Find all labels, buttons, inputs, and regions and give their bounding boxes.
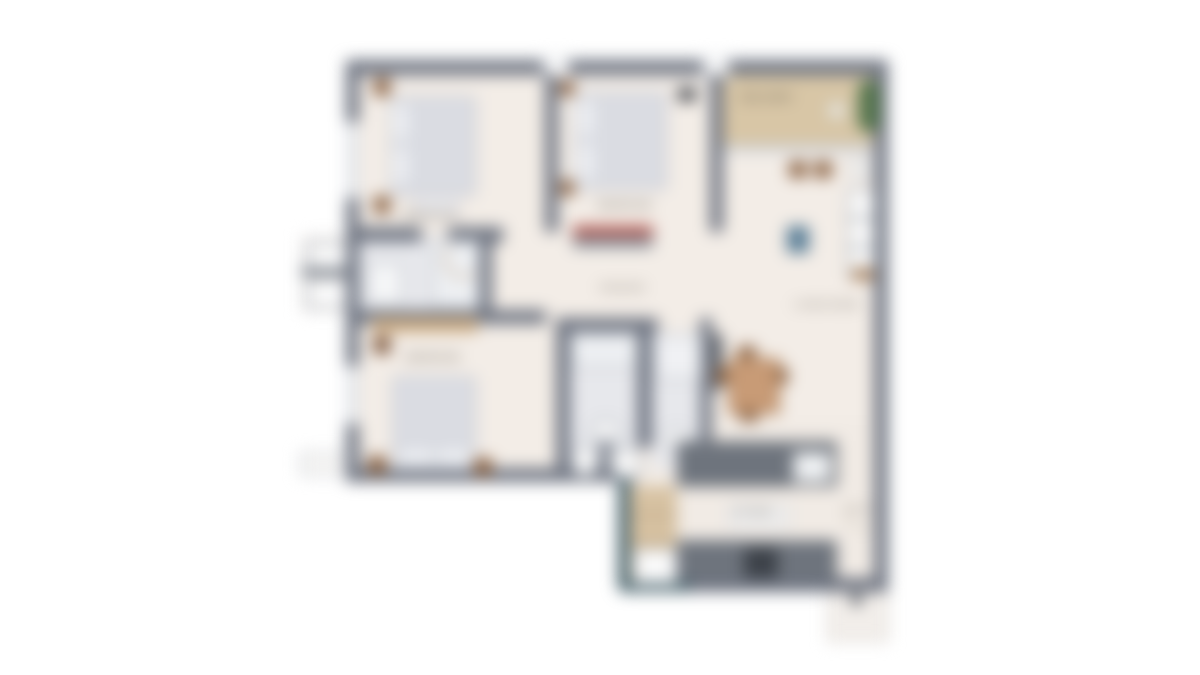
door-arc-icon (846, 498, 878, 530)
dining-chair (738, 346, 756, 358)
refrigerator-icon (633, 548, 678, 584)
dresser (372, 318, 478, 332)
room-label: ENTRY (846, 506, 874, 513)
dresser-books (573, 226, 653, 236)
wall-top (346, 60, 884, 75)
window-left-2 (346, 366, 359, 424)
door-arc-icon (444, 240, 482, 278)
wall-baths-mid (637, 318, 652, 448)
shelf-unit (847, 218, 876, 248)
toilet-icon (572, 446, 598, 476)
balcony-rail (723, 145, 874, 152)
room-label: LIVING ROOM (794, 300, 859, 309)
wall-bath1-right (478, 232, 492, 318)
pillow (577, 98, 595, 138)
room-label: KITCHEN (734, 508, 772, 515)
pillow (398, 448, 434, 466)
nightstand-icon (560, 80, 574, 96)
floor-plan: BEDROOM BEDROOM BEDROOM (0, 0, 1200, 675)
bed-blanket (394, 378, 472, 444)
room-label: BALCONY (742, 92, 794, 102)
pillow (436, 448, 472, 466)
sink-icon (791, 450, 833, 484)
armchair (814, 161, 832, 178)
blue-rug (787, 226, 809, 253)
pantry-shelf-line (630, 542, 677, 545)
wall-kitchen-left (618, 478, 630, 588)
wall-bed1-bed2 (545, 74, 558, 232)
window-left-1 (346, 122, 359, 198)
nightstand-icon (560, 180, 574, 196)
dining-chair (716, 368, 728, 384)
armchair (789, 161, 807, 178)
pillow (577, 142, 595, 182)
pillow (392, 102, 410, 142)
washbasin (590, 420, 622, 442)
dining-chair (776, 368, 788, 384)
side-table (850, 158, 872, 180)
dining-table (728, 358, 780, 414)
pantry-shelf-line (630, 514, 677, 517)
floor-plan-image: BEDROOM BEDROOM BEDROOM (0, 0, 1200, 675)
balcony-floor (723, 74, 874, 148)
nightstand-icon (374, 78, 390, 96)
dresser (573, 236, 653, 248)
wall-shelf (852, 268, 874, 280)
wall-under-bed1-a (346, 227, 422, 242)
vanity (368, 262, 402, 306)
wall-left-lower (346, 232, 359, 480)
toilet-icon (612, 447, 640, 479)
ac-unit-icon (678, 88, 696, 101)
dining-chair (740, 410, 758, 422)
nightstand-icon (474, 458, 492, 476)
room-label: PASSAGE (600, 283, 646, 292)
wall-bed2-living (710, 74, 723, 232)
shelf-unit (847, 189, 876, 219)
pillow (392, 146, 410, 186)
bathtub (654, 334, 702, 380)
room-label: BEDROOM (404, 210, 458, 220)
nightstand-icon (374, 196, 390, 214)
bed-blanket (412, 98, 472, 192)
side-table (827, 101, 846, 120)
entry-extension-icon (851, 594, 862, 605)
wall-bed3-baths (556, 318, 570, 482)
room-label: BEDROOM (406, 352, 460, 362)
cooktop-icon (744, 548, 778, 578)
wardrobe-icon (374, 336, 390, 354)
bed-blanket (595, 94, 663, 186)
plant-icon (858, 80, 880, 132)
shower (570, 334, 638, 368)
nightstand-icon (368, 456, 386, 474)
room-label: BEDROOM (598, 200, 652, 210)
